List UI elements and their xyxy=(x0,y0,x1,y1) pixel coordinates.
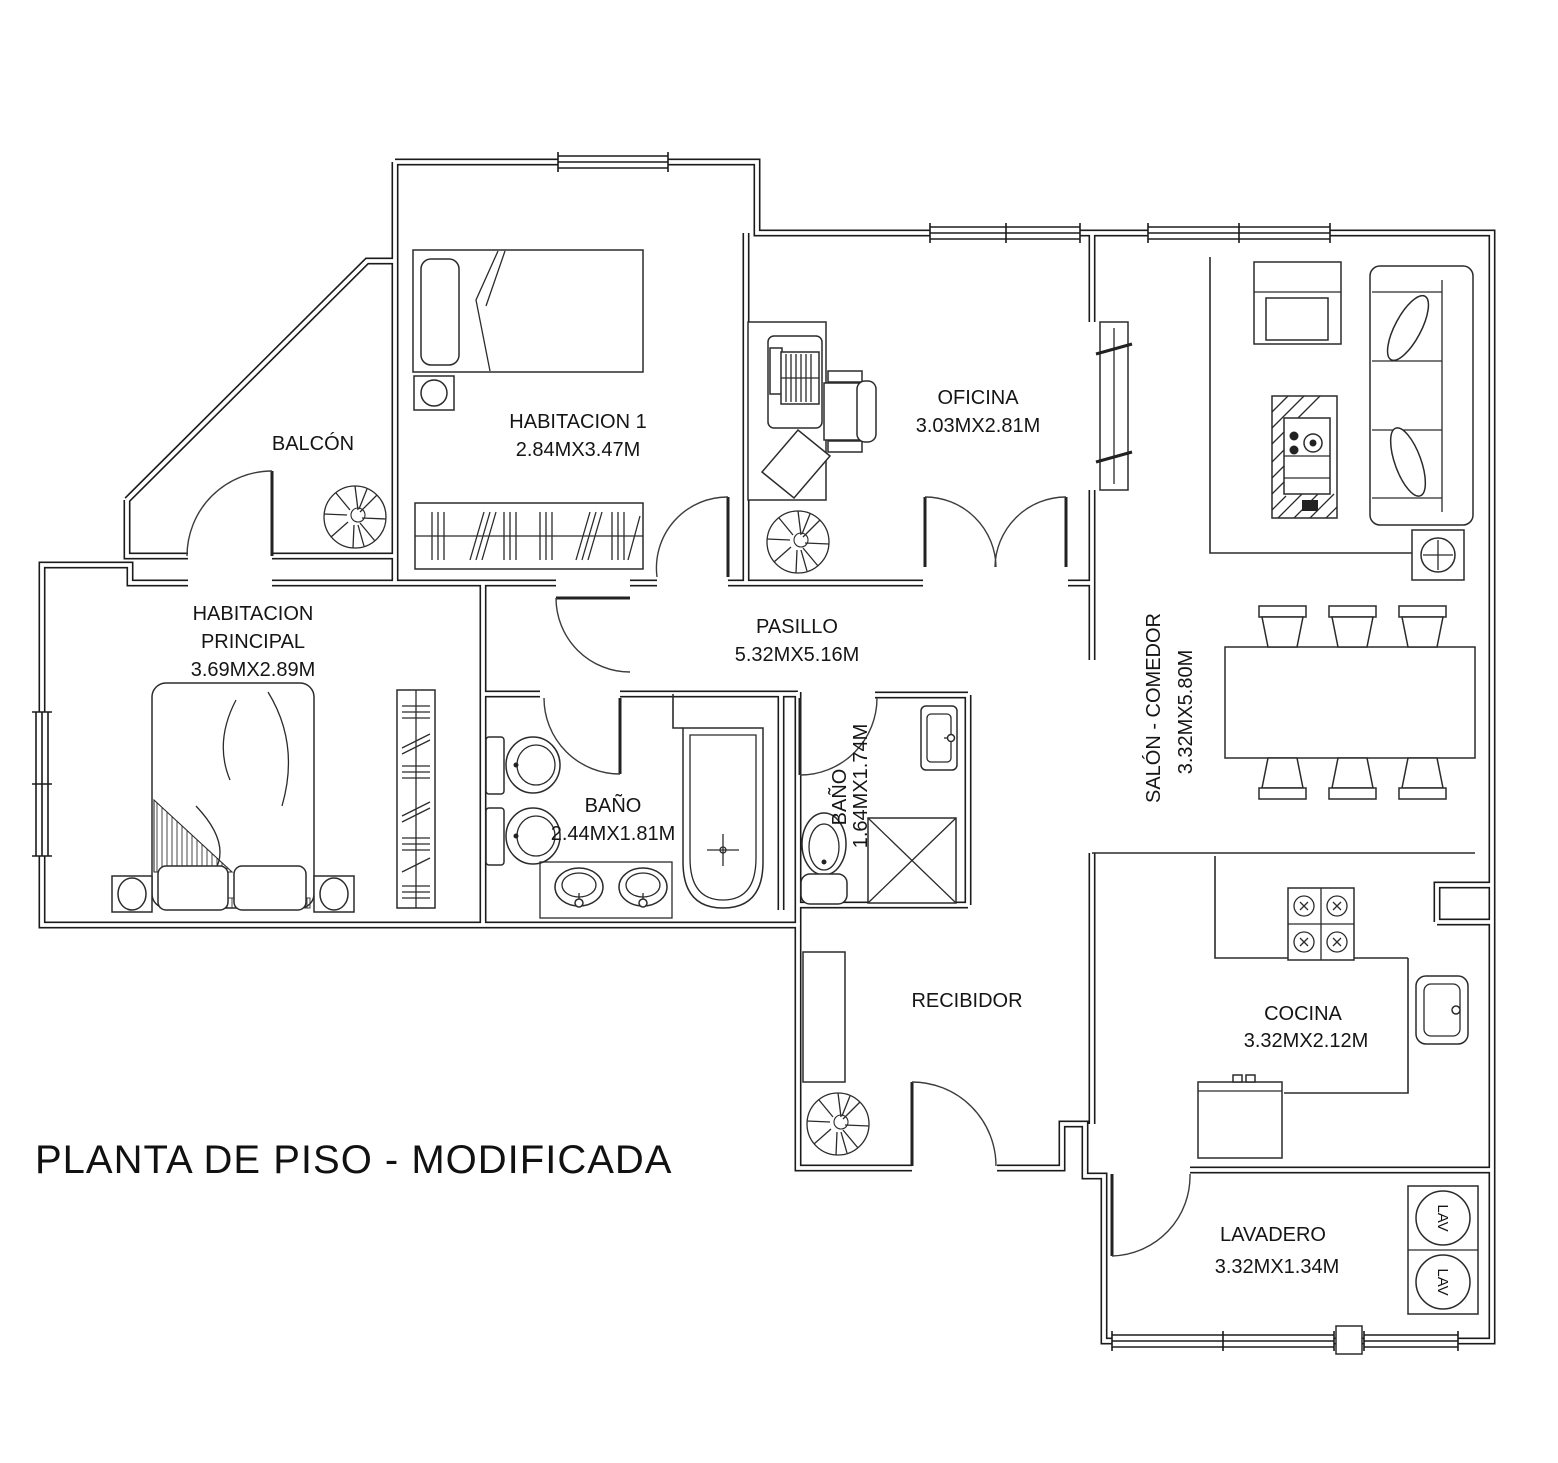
label-lavadero: LAVADERO xyxy=(1220,1224,1326,1246)
chair-oficina xyxy=(824,371,876,452)
door-lavadero xyxy=(1112,1174,1190,1256)
toilet-2-bano-grande xyxy=(486,808,560,865)
label-pasillo: PASILLO xyxy=(756,616,838,638)
island-salon xyxy=(1272,396,1337,518)
dims-pasillo: 5.32MX5.16M xyxy=(735,644,860,666)
toilet-bano-pequeno xyxy=(801,813,847,904)
dims-cocina: 3.32MX2.12M xyxy=(1244,1030,1369,1052)
door-balcon xyxy=(187,471,272,556)
side-table-salon xyxy=(1412,530,1464,580)
sofa-salon xyxy=(1370,266,1473,525)
fridge-cocina xyxy=(1198,1075,1282,1158)
vanity-bano-grande xyxy=(540,862,672,918)
cabinet-recibidor xyxy=(803,952,845,1082)
washers-lavadero: LAV LAV xyxy=(1408,1186,1478,1314)
bed-principal xyxy=(112,683,354,912)
dims-salon-comedor: 3.32MX5.80M xyxy=(1175,650,1197,775)
dims-lavadero: 3.32MX1.34M xyxy=(1215,1256,1340,1278)
sink-bano-pequeno xyxy=(921,706,957,770)
washer1-label: LAV xyxy=(1434,1204,1451,1231)
wardrobe-habitacion1 xyxy=(415,503,643,569)
floor-plan-svg: LAV LAV BALCÓN HABITACION 1 2.84MX3.47M … xyxy=(0,0,1558,1463)
label-habitacion1: HABITACION 1 xyxy=(509,411,646,433)
door-habitacion-principal xyxy=(556,598,630,672)
plant-icon-balcon xyxy=(324,486,386,548)
plan-title: PLANTA DE PISO - MODIFICADA xyxy=(35,1138,672,1182)
wardrobe-principal xyxy=(397,690,435,908)
label-habitacion-principal-2: PRINCIPAL xyxy=(201,631,305,653)
sink-cocina xyxy=(1416,976,1468,1044)
armchair-salon xyxy=(1254,262,1341,344)
door-habitacion1 xyxy=(656,497,728,577)
shower-bano-pequeno xyxy=(868,818,956,903)
bathtub-bano-grande xyxy=(683,728,763,908)
dims-habitacion1: 2.84MX3.47M xyxy=(516,439,641,461)
sliding-door-salon xyxy=(1096,322,1132,490)
washer2-label: LAV xyxy=(1434,1268,1451,1295)
label-oficina: OFICINA xyxy=(937,387,1019,409)
dims-bano-grande: 2.44MX1.81M xyxy=(551,823,676,845)
floor-plan-page: LAV LAV BALCÓN HABITACION 1 2.84MX3.47M … xyxy=(0,0,1558,1463)
label-recibidor: RECIBIDOR xyxy=(911,990,1022,1012)
label-balcon: BALCÓN xyxy=(272,432,354,455)
label-bano-pequeno: BAÑO xyxy=(827,769,851,826)
dims-habitacion-principal: 3.69MX2.89M xyxy=(191,659,316,681)
plant-icon-recibidor xyxy=(807,1093,869,1155)
dining-table xyxy=(1225,647,1475,758)
label-bano-grande: BAÑO xyxy=(585,793,642,817)
door-oficina-double xyxy=(925,497,1066,567)
dims-bano-pequeno: 1.64MX1.74M xyxy=(850,724,872,849)
plant-icon-oficina xyxy=(767,511,829,573)
dims-oficina: 3.03MX2.81M xyxy=(916,415,1041,437)
label-cocina: COCINA xyxy=(1264,1003,1342,1025)
toilet-1-bano-grande xyxy=(486,737,560,794)
stove-cocina xyxy=(1288,888,1354,960)
label-salon-comedor: SALÓN - COMEDOR xyxy=(1142,613,1165,803)
bed-habitacion1 xyxy=(413,250,643,410)
label-habitacion-principal-1: HABITACION xyxy=(193,603,314,625)
door-entrada xyxy=(912,1082,996,1166)
